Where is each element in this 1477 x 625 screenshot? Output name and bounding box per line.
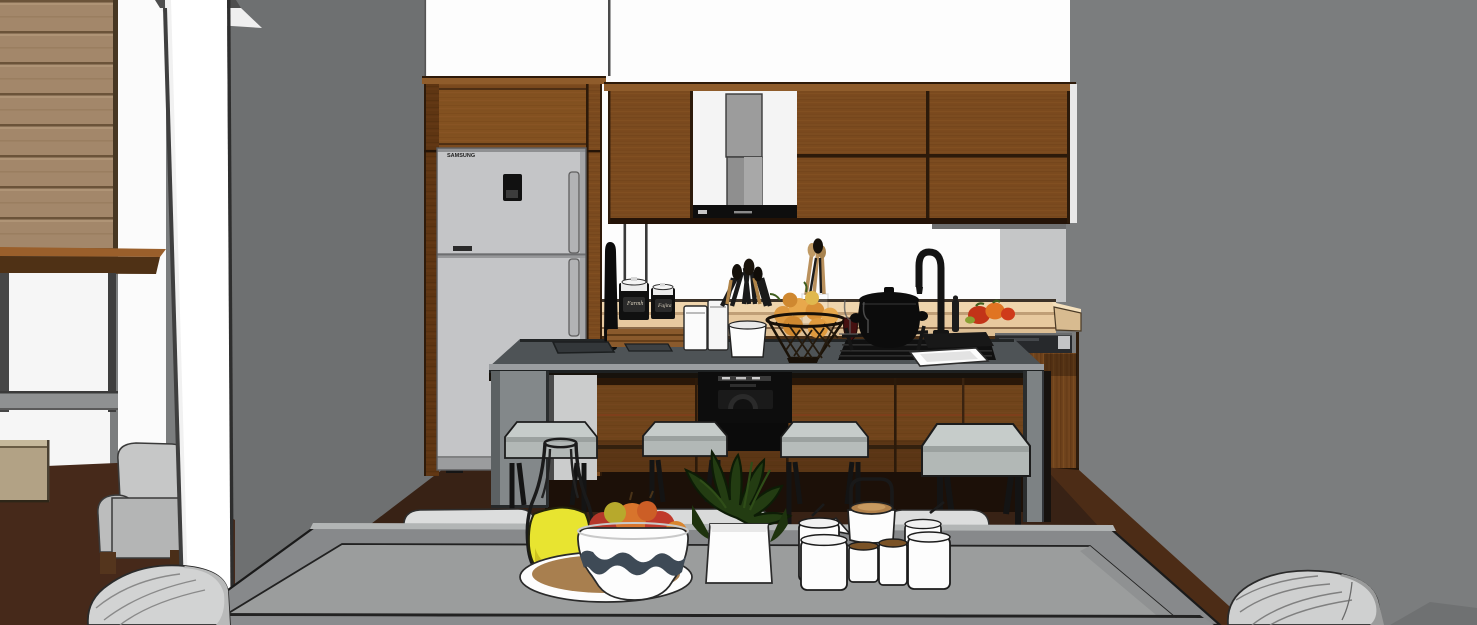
svg-text:Fajita: Fajita (657, 303, 672, 309)
svg-text:Farmh: Farmh (626, 301, 643, 307)
svg-text:SAMSUNG: SAMSUNG (447, 153, 475, 159)
